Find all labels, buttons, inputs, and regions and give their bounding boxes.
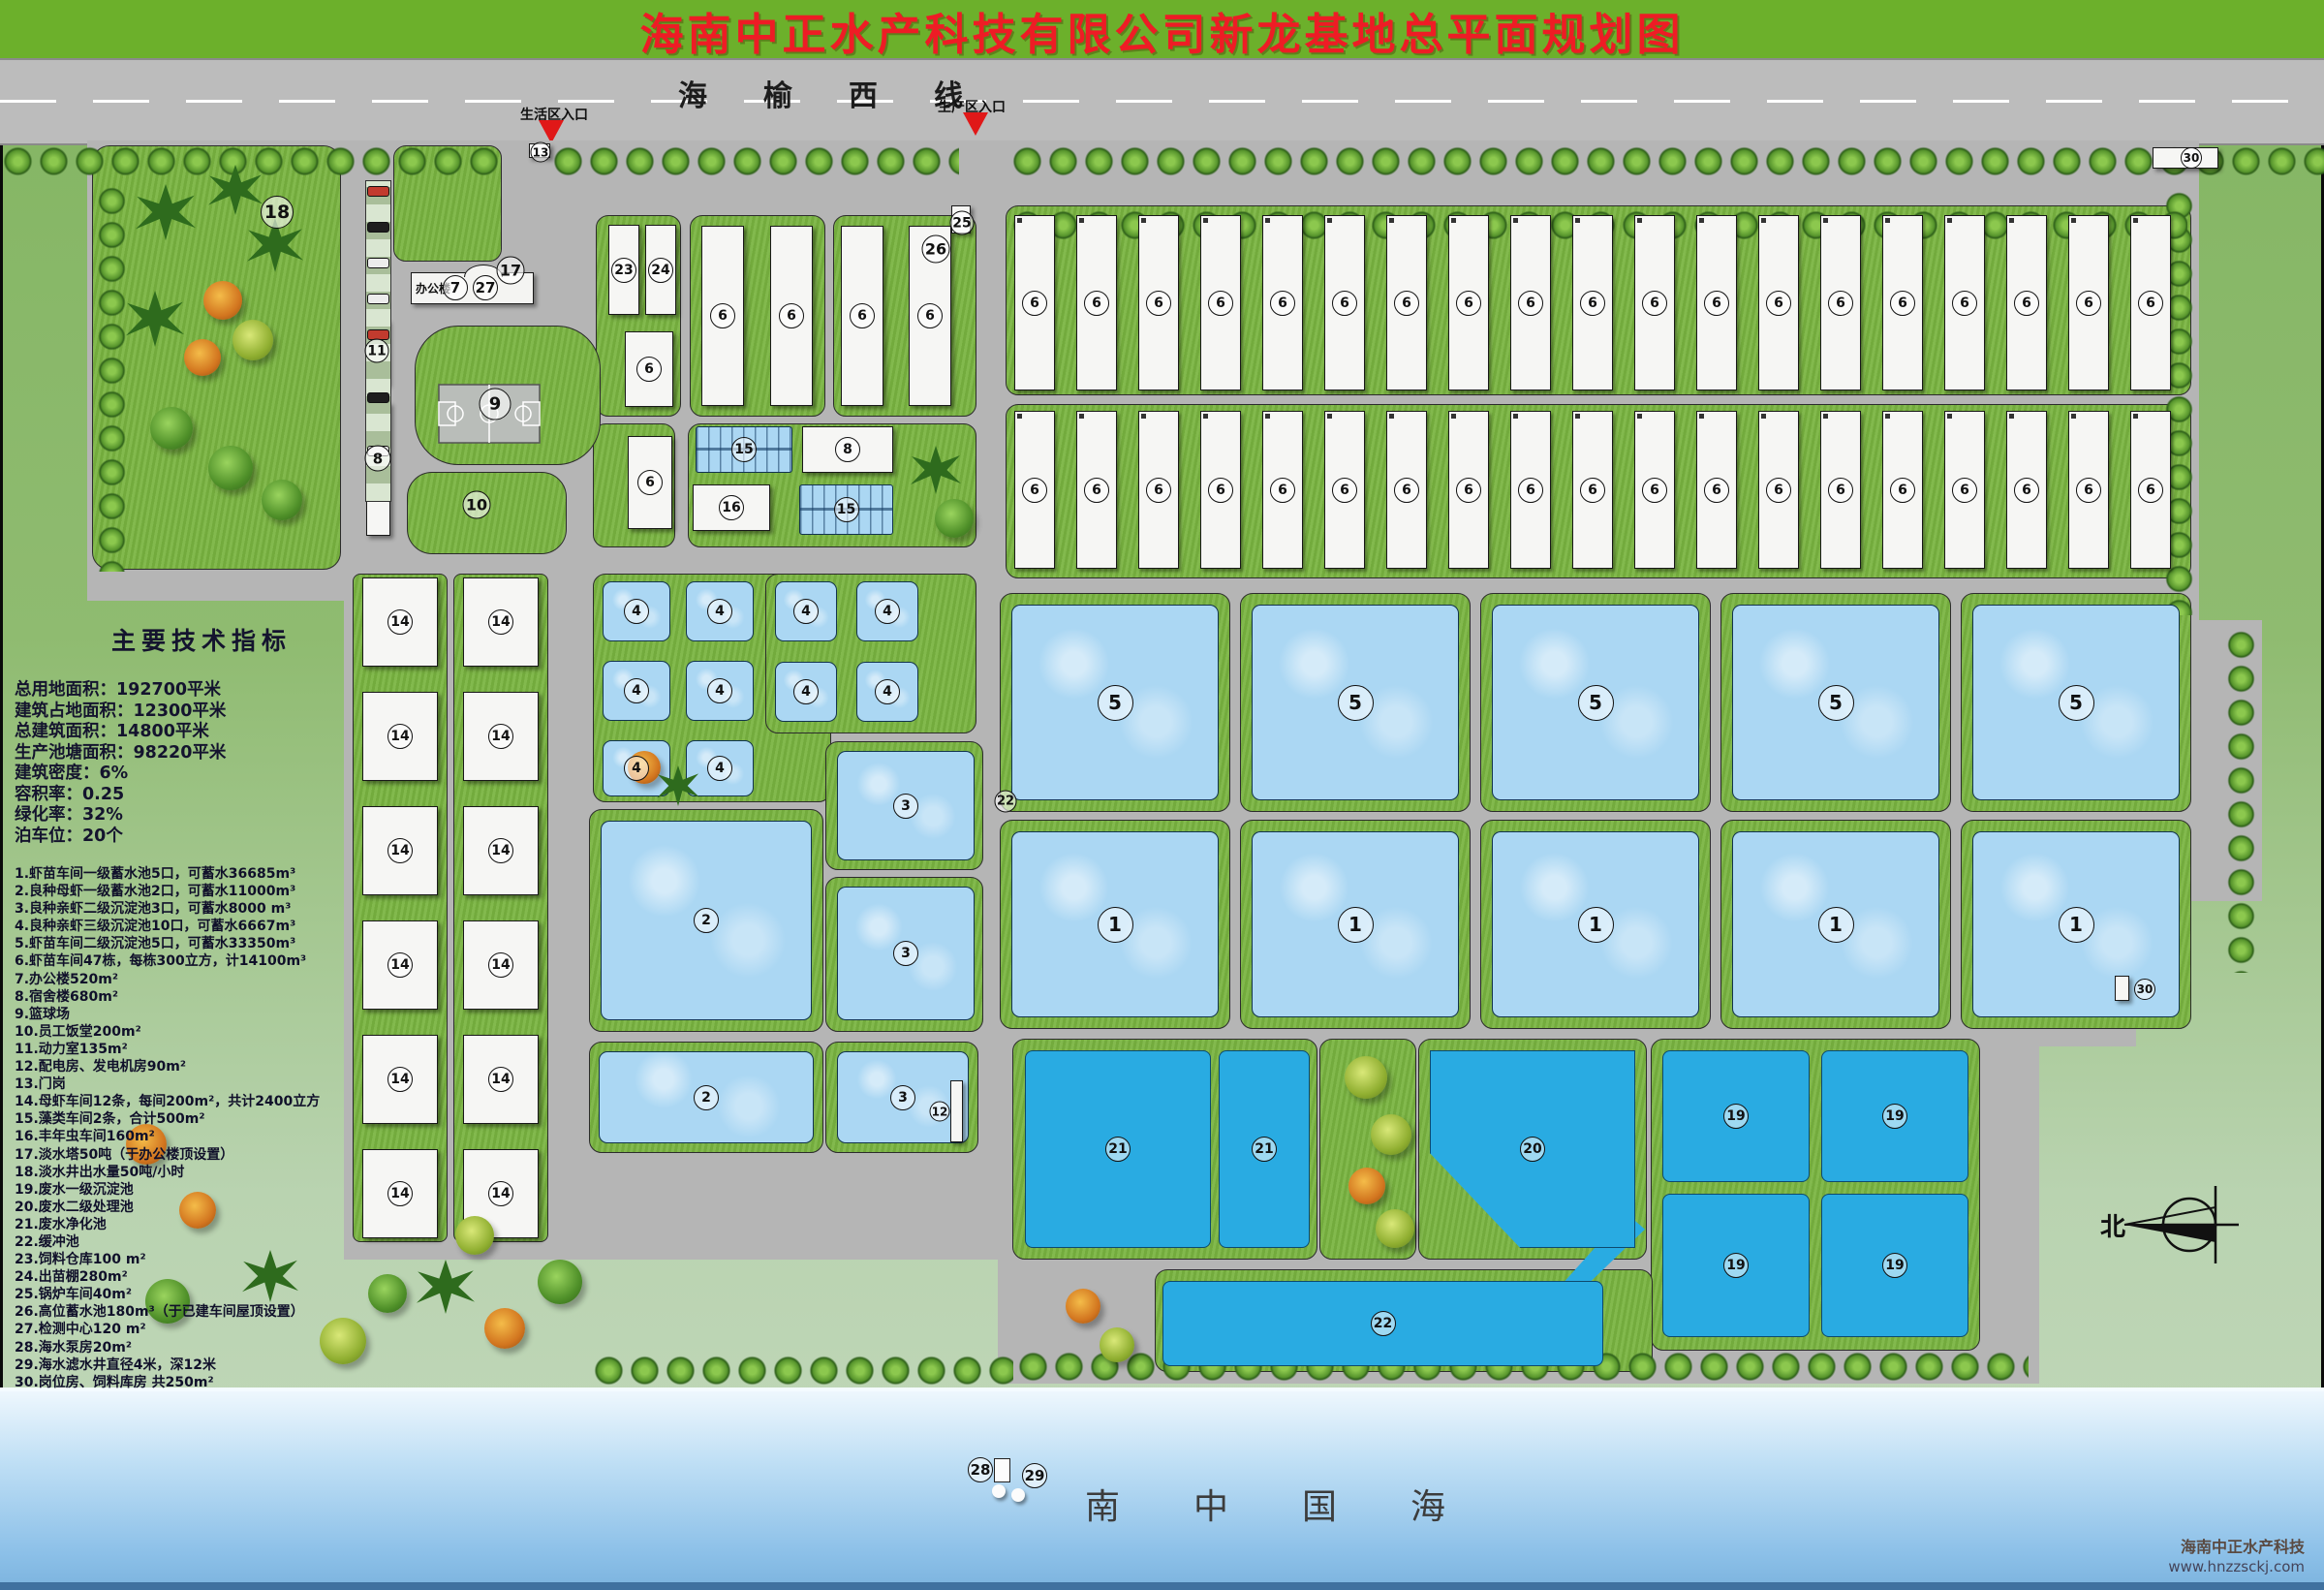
indicator-line: 总用地面积：192700平米: [15, 680, 334, 701]
grass-block: [589, 1042, 823, 1153]
legend-item: 30.岗位房、饲料库房 共250m²: [15, 1374, 363, 1391]
sea-pump-house: [994, 1458, 1010, 1482]
pond-cell: [1000, 820, 1230, 1029]
legend-item: 13.门岗: [15, 1076, 363, 1093]
legend-item: 26.高位蓄水池180m³（于已建车间屋顶设置）: [15, 1303, 363, 1321]
legend-list: 1.虾苗车间一级蓄水池5口，可蓄水36685m³2.良种母虾一级蓄水池2口，可蓄…: [15, 865, 363, 1391]
tree-row: [591, 1353, 1013, 1386]
tree-icon: [455, 1216, 494, 1255]
legend-item: 12.配电房、发电机房90m²: [15, 1058, 363, 1076]
tree-icon: [538, 1260, 582, 1304]
grass-block: [688, 423, 976, 547]
indicator-line: 建筑占地面积：12300平米: [15, 701, 334, 723]
sea-filter-well-icon: [1011, 1488, 1025, 1502]
legend-item: 15.藻类车间2条，合计500m²: [15, 1110, 363, 1128]
car-icon: [367, 329, 389, 340]
tree-row: [550, 143, 959, 182]
pond-cell: [1480, 820, 1711, 1029]
car-icon: [367, 258, 389, 268]
legend-item: 22.缓冲池: [15, 1233, 363, 1251]
tree-icon: [1371, 1114, 1411, 1155]
orange-tree-icon: [1066, 1289, 1100, 1324]
pond-cell: [1240, 593, 1471, 812]
tree-column: [2162, 189, 2195, 615]
legend-item: 19.废水一级沉淀池: [15, 1181, 363, 1199]
orange-tree-icon: [203, 281, 242, 320]
car-icon: [367, 186, 389, 197]
tree-icon: [1100, 1327, 1134, 1362]
orange-tree-icon: [628, 751, 661, 784]
palm-tree-icon: [417, 1260, 475, 1314]
legend-item: 27.检测中心120 m²: [15, 1321, 363, 1338]
legend-item: 11.动力室135m²: [15, 1041, 363, 1058]
grass-block: [825, 1042, 978, 1153]
site-plan-page: 海南中正水产科技有限公司新龙基地总平面规划图 海榆西线 生活区入口 生产区入口 …: [0, 0, 2324, 1590]
legend-item: 18.淡水井出水量50吨/小时: [15, 1164, 363, 1181]
indicators-title: 主要技术指标: [111, 622, 334, 657]
tree-icon: [208, 446, 253, 490]
legend-item: 9.篮球场: [15, 1006, 363, 1023]
page-title: 海南中正水产科技有限公司新龙基地总平面规划图: [639, 0, 1684, 62]
legend-item: 28.海水泵房20m²: [15, 1339, 363, 1356]
grass-strip: [453, 574, 548, 1242]
grass-block: [593, 423, 675, 547]
legend-item: 21.废水净化池: [15, 1216, 363, 1233]
tree-icon: [1345, 1056, 1387, 1099]
legend-item: 8.宿舍楼680m²: [15, 988, 363, 1006]
pond-cell: [1240, 820, 1471, 1029]
legend-item: 1.虾苗车间一级蓄水池5口，可蓄水36685m³: [15, 865, 363, 883]
grass-block: [596, 215, 681, 417]
office-building: 办公楼: [411, 272, 534, 304]
tree-icon: [935, 499, 974, 538]
legend-item: 23.饲料仓库100 m²: [15, 1251, 363, 1268]
basketball-court: [438, 384, 541, 444]
tree-icon: [1376, 1209, 1414, 1248]
grass-strip: [353, 574, 448, 1242]
grass-block: [589, 809, 823, 1032]
legend-item: 6.虾苗车间47栋，每栋300立方，计14100m³: [15, 952, 363, 970]
watermark: 海南中正水产科技 www.hnzzsckj.com: [2168, 1538, 2305, 1576]
road-centerline: [0, 100, 2324, 103]
indicator-line: 建筑密度：6%: [15, 764, 334, 785]
sea-name: 南中国海: [1085, 1479, 1519, 1529]
indicators-list: 总用地面积：192700平米建筑占地面积：12300平米总建筑面积：14800平…: [15, 680, 334, 847]
grass-block: [825, 741, 983, 870]
indicator-line: 绿化率：32%: [15, 805, 334, 826]
indicator-line: 总建筑面积：14800平米: [15, 722, 334, 743]
sea-filter-well-icon: [992, 1484, 1006, 1498]
workshop-row-block: [1006, 404, 2191, 578]
car-icon: [367, 222, 389, 233]
tree-icon: [232, 320, 273, 360]
legend-item: 29.海水滤水井直径4米，深12米: [15, 1356, 363, 1374]
grass-block: [1651, 1039, 1980, 1351]
title-banner: 海南中正水产科技有限公司新龙基地总平面规划图: [0, 0, 2324, 60]
legend-item: 3.良种亲虾二级沉淀池3口，可蓄水8000 m³: [15, 900, 363, 918]
legend-item: 16.丰年虫车间160m²: [15, 1128, 363, 1145]
highway: 海榆西线 生活区入口 生产区入口: [0, 60, 2324, 143]
legend-item: 24.出苗棚280m²: [15, 1268, 363, 1286]
orange-tree-icon: [184, 339, 221, 376]
pond-cell: [1480, 593, 1711, 812]
tree-column: [95, 184, 132, 572]
legend-item: 17.淡水塔50吨（于办公楼顶设置）: [15, 1146, 363, 1164]
grass-block: [690, 215, 825, 417]
legend-item: 5.虾苗车间二级沉淀池5口，可蓄水33350m³: [15, 935, 363, 952]
legend-item: 2.良种母虾一级蓄水池2口，可蓄水11000m³: [15, 883, 363, 900]
office-building-label: 办公楼: [416, 280, 450, 296]
legend-item: 25.锅炉车间40m²: [15, 1286, 363, 1303]
indicator-line: 生产池塘面积：98220平米: [15, 743, 334, 764]
pond-cell: [1961, 820, 2191, 1029]
sea: 南中国海 海南中正水产科技 www.hnzzsckj.com: [0, 1387, 2324, 1590]
tree-icon: [150, 407, 193, 450]
tree-row: [0, 143, 502, 182]
car-icon: [367, 392, 389, 403]
technical-indicators: 主要技术指标 总用地面积：192700平米建筑占地面积：12300平米总建筑面积…: [15, 622, 334, 847]
pond-cell: [1000, 593, 1230, 812]
company-website: www.hnzzsckj.com: [2168, 1557, 2305, 1576]
tree-row: [1009, 143, 2324, 182]
orange-tree-icon: [1348, 1168, 1385, 1204]
tree-icon: [368, 1274, 407, 1313]
car-icon: [367, 294, 389, 304]
sea-bottom-bar: [0, 1582, 2324, 1590]
compass-north-label: 北: [2100, 1207, 2125, 1243]
legend-item: 10.员工饭堂200m²: [15, 1023, 363, 1041]
grass-block: [833, 215, 976, 417]
pond-cell: [1720, 593, 1951, 812]
grass-block: [1012, 1039, 1317, 1260]
tree-column: [2224, 628, 2259, 973]
pond-cell: [1720, 820, 1951, 1029]
legend-item: 14.母虾车间12条，每间200m²，共计2400立方: [15, 1093, 363, 1110]
indicator-line: 泊车位：20个: [15, 826, 334, 848]
entrance-arrow-icon: [963, 112, 988, 136]
pond-cell: [1961, 593, 2191, 812]
orange-tree-icon: [484, 1308, 525, 1349]
car-icon: [367, 446, 389, 456]
entrance-arrow-icon: [539, 120, 564, 143]
legend-item: 4.良种亲虾三级沉淀池10口，可蓄水6667m³: [15, 918, 363, 935]
tree-row: [1015, 1349, 2029, 1384]
tree-icon: [262, 480, 302, 520]
grass-block: [825, 877, 983, 1032]
grass-block: [765, 574, 976, 733]
grass-block: [407, 472, 567, 554]
tree-row: [1009, 207, 2187, 240]
indicator-line: 容积率：0.25: [15, 785, 334, 806]
legend-item: 7.办公楼520m²: [15, 971, 363, 988]
legend-item: 20.废水二级处理池: [15, 1199, 363, 1216]
grass-block: [1418, 1039, 1647, 1260]
company-name: 海南中正水产科技: [2168, 1538, 2305, 1557]
